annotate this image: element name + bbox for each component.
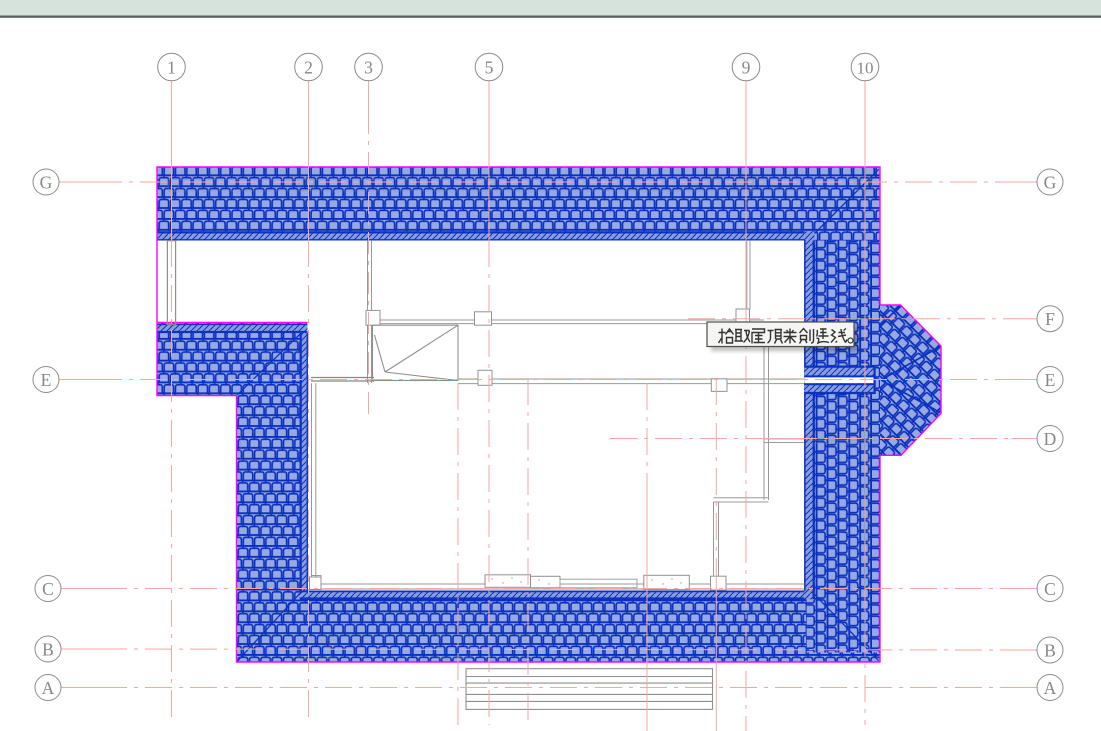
- svg-text:3: 3: [364, 58, 373, 78]
- svg-text:A: A: [42, 678, 55, 698]
- svg-text:G: G: [1044, 173, 1057, 193]
- svg-text:E: E: [1045, 370, 1056, 390]
- svg-text:E: E: [41, 370, 52, 390]
- svg-text:C: C: [42, 579, 54, 599]
- svg-text:5: 5: [485, 58, 494, 78]
- svg-text:G: G: [40, 173, 53, 193]
- svg-text:C: C: [1044, 579, 1056, 599]
- svg-text:B: B: [42, 640, 54, 660]
- svg-text:1: 1: [167, 58, 176, 78]
- svg-text:A: A: [1044, 678, 1057, 698]
- svg-text:9: 9: [742, 58, 751, 78]
- svg-text:F: F: [1045, 309, 1055, 329]
- svg-text:D: D: [1044, 429, 1057, 449]
- svg-text:2: 2: [304, 58, 313, 78]
- svg-text:10: 10: [857, 59, 874, 78]
- svg-text:B: B: [1044, 641, 1056, 661]
